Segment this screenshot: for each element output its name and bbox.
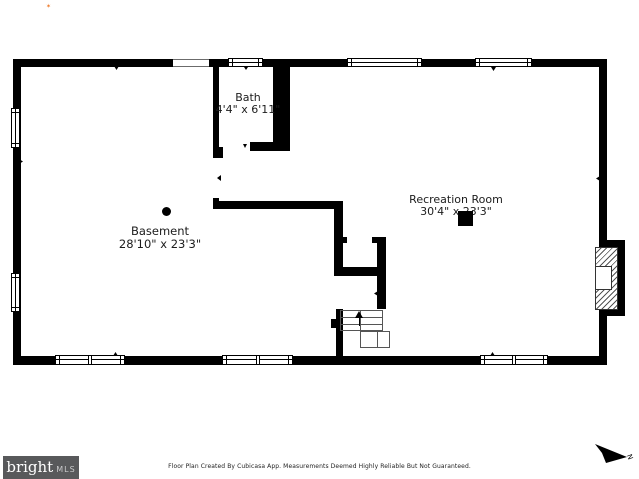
bath-window — [228, 58, 263, 67]
closet-door-jamb-right — [372, 237, 378, 243]
brand-spark-icon: ✶ — [46, 3, 51, 10]
recreation-support-post — [458, 211, 473, 226]
door-tick-bath-window — [244, 67, 248, 70]
bottom-window-2 — [222, 355, 293, 365]
basement-dims: 28'10" x 23'3" — [102, 238, 218, 251]
fireplace-firebox — [595, 266, 612, 290]
top-window-1 — [347, 58, 422, 67]
closet-door-tick — [374, 291, 378, 296]
top-wall-left — [13, 59, 173, 67]
right-wall — [599, 59, 607, 364]
door-tick-left-wall — [19, 159, 23, 164]
bottom-window-1 — [55, 355, 125, 365]
north-arrow-icon — [594, 443, 628, 465]
bottom-window-3 — [480, 355, 548, 365]
door-tick-bottom-2 — [490, 352, 495, 356]
left-window-2 — [11, 273, 20, 312]
stairs-tread-2 — [340, 324, 383, 325]
left-window-1 — [11, 108, 20, 148]
door-tick-top-2 — [491, 67, 496, 71]
stairs-lower-landing — [360, 331, 390, 348]
bath-label: Bath 4'4" x 6'11" — [211, 92, 285, 116]
bath-dims: 4'4" x 6'11" — [211, 104, 285, 116]
recreation-room-label: Recreation Room 30'4" x 23'3" — [394, 194, 518, 218]
bath-bottom-wall — [250, 142, 290, 151]
bath-left-wall-stub — [213, 147, 223, 158]
floor-plan-canvas: Bath 4'4" x 6'11" Basement 28'10" x 23'3… — [0, 0, 639, 479]
basement-name: Basement — [102, 225, 218, 238]
footer-disclaimer: Floor Plan Created By Cubicasa App. Meas… — [0, 463, 639, 470]
door-tick-right-wall — [596, 176, 600, 181]
stair-side-wall-stub — [331, 319, 336, 328]
compass-north-label: N — [625, 453, 634, 461]
stairs-up-arrow-stem — [359, 317, 360, 326]
bath-door-tick — [243, 144, 247, 148]
recreation-room-dims: 30'4" x 23'3" — [394, 206, 518, 218]
stairs-landing-tread — [377, 331, 378, 348]
stairs-up-arrow-icon — [355, 311, 363, 318]
door-tick-top-1 — [114, 66, 119, 70]
divider-wall — [213, 201, 343, 209]
top-wall-opening — [173, 59, 209, 67]
left-wall — [13, 59, 21, 364]
top-window-2 — [475, 58, 532, 67]
hall-door-tick — [217, 175, 221, 181]
basement-support-column — [162, 207, 171, 216]
basement-label: Basement 28'10" x 23'3" — [102, 225, 218, 250]
closet-door-jamb-left — [341, 237, 347, 243]
door-tick-bottom-1 — [113, 352, 118, 356]
closet-right-wall — [377, 237, 386, 309]
